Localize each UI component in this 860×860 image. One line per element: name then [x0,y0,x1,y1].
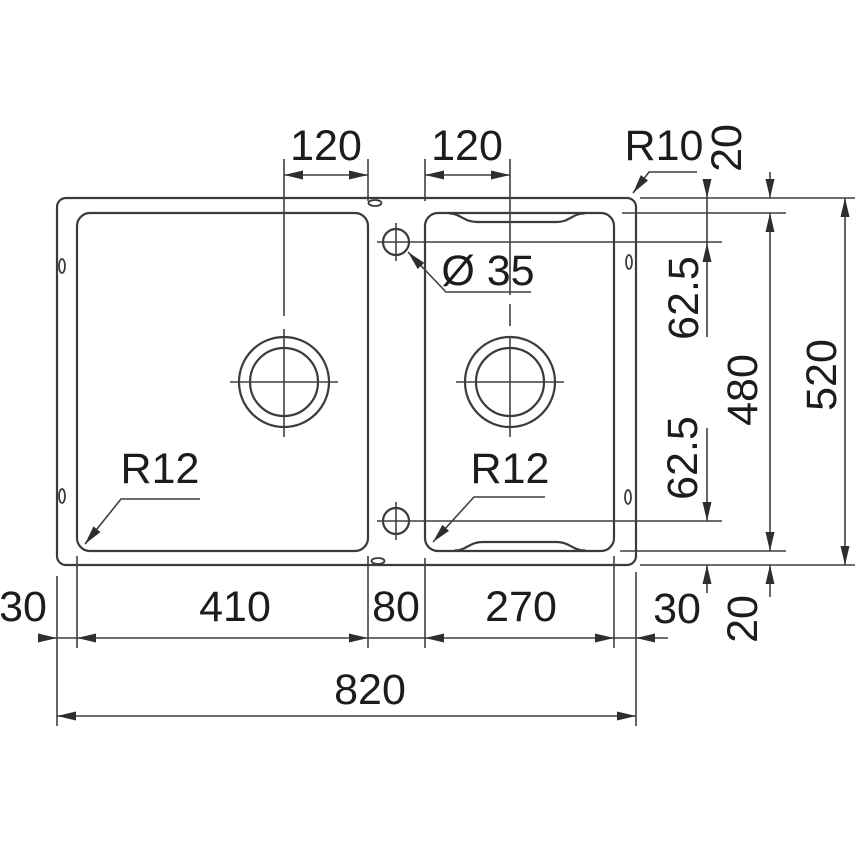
dim-overall-depth-520: 520 [798,198,850,565]
dim-label-faucet-bottom: 62.5 [659,416,707,500]
mounting-slot-left-bottom [59,489,65,503]
drain-left [230,159,338,437]
dim-label-bowl-right-width: 270 [485,583,557,631]
dim-label-overall-width: 820 [334,666,406,714]
dim-label-margin-right: 30 [653,585,701,633]
dim-rim-top-20: 20 [703,124,775,198]
dim-top-left-120: 120 [284,122,368,201]
bowl-right-bottom-ledge [455,542,585,551]
dim-label-rim-bottom: 20 [719,595,767,643]
drawing-canvas: 120 120 R10 Ø 35 R12 R12 [0,0,860,860]
dim-label-faucet-diameter: Ø 35 [441,247,534,295]
dim-inner-depth-480: 480 [719,213,775,551]
dim-overall-width-820: 820 [57,666,636,721]
dim-label-overall-depth: 520 [798,339,846,411]
dim-label-bowl-left-radius: R12 [121,445,200,493]
dim-label-corner-radius: R10 [625,122,704,170]
dim-bottom-row: 30 410 80 270 30 [0,583,701,643]
faucet-hole-top [377,223,415,261]
dim-label-bowl-right-radius: R12 [471,445,550,493]
faucet-hole-bottom [377,502,415,540]
leader-bowl-right-radius: R12 [430,445,550,545]
mounting-slot-right-bottom [625,490,631,504]
mounting-slot-right-top [626,255,632,269]
dim-label-margin-left: 30 [0,583,47,631]
dim-faucet-bottom-62-5: 62.5 [659,416,712,593]
sink-technical-drawing: 120 120 R10 Ø 35 R12 R12 [0,0,860,860]
mounting-slot-top-center [369,200,382,206]
drain-right [456,159,564,437]
bowl-right-top-ledge [450,214,584,223]
mounting-slot-bottom-center [372,558,385,564]
dim-label-bowl-left-width: 410 [199,583,271,631]
dim-label-inner-depth: 480 [719,354,767,426]
dim-top-right-120: 120 [425,122,510,201]
dim-label-divider-width: 80 [372,583,420,631]
dim-label-top-right-120: 120 [431,122,503,170]
leader-corner-radius: R10 [625,122,704,196]
dim-label-rim-top: 20 [703,124,751,172]
leader-bowl-left-radius: R12 [82,445,200,547]
dim-label-top-left-120: 120 [290,122,362,170]
dim-label-faucet-top: 62.5 [660,256,708,340]
dim-faucet-top-62-5: 62.5 [660,179,712,340]
dim-rim-bottom-20: 20 [719,565,775,643]
mounting-slot-left-top [59,259,65,273]
